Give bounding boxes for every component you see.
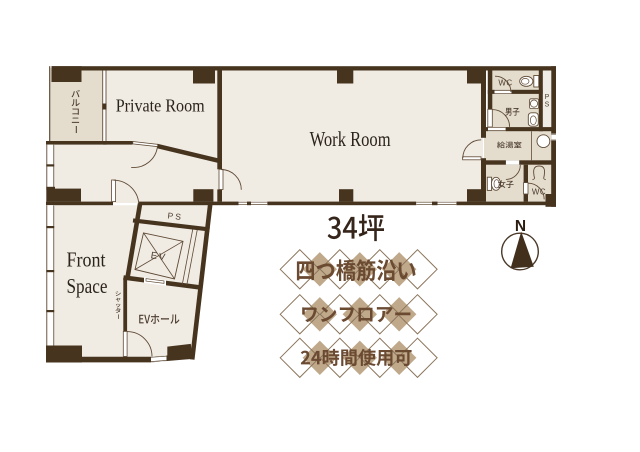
svg-text:N: N xyxy=(515,218,526,235)
svg-text:WC: WC xyxy=(532,187,546,196)
svg-text:Front: Front xyxy=(67,248,106,272)
svg-text:S: S xyxy=(545,102,550,109)
svg-text:PS: PS xyxy=(167,210,184,222)
svg-text:Private Room: Private Room xyxy=(116,96,205,116)
svg-text:WC: WC xyxy=(498,79,512,88)
svg-text:Work Room: Work Room xyxy=(310,127,391,151)
svg-text:P: P xyxy=(545,94,550,101)
svg-text:Space: Space xyxy=(67,274,108,298)
